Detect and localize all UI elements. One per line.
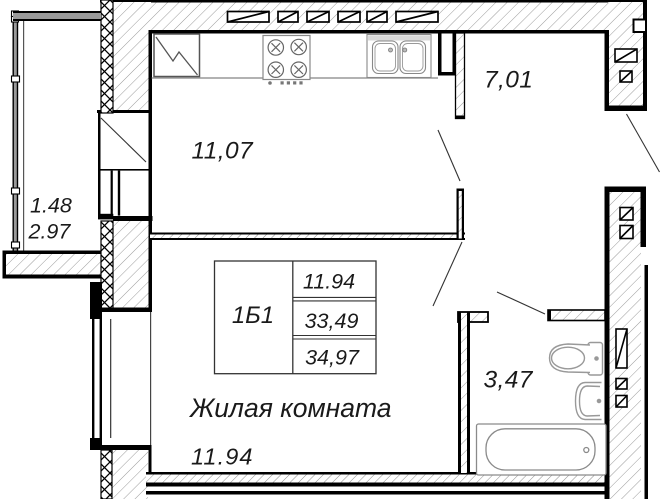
svg-text:Жилая комната: Жилая комната [188, 393, 392, 423]
svg-text:7,01: 7,01 [484, 67, 533, 94]
svg-text:3,47: 3,47 [484, 367, 534, 394]
svg-text:1.48: 1.48 [30, 194, 72, 218]
svg-text:11.94: 11.94 [191, 444, 254, 470]
svg-text:33,49: 33,49 [305, 309, 359, 333]
svg-text:11,07: 11,07 [192, 138, 254, 165]
svg-text:34,97: 34,97 [305, 346, 360, 370]
svg-text:11.94: 11.94 [303, 270, 355, 294]
svg-text:1Б1: 1Б1 [232, 302, 274, 329]
svg-text:2.97: 2.97 [28, 220, 72, 244]
